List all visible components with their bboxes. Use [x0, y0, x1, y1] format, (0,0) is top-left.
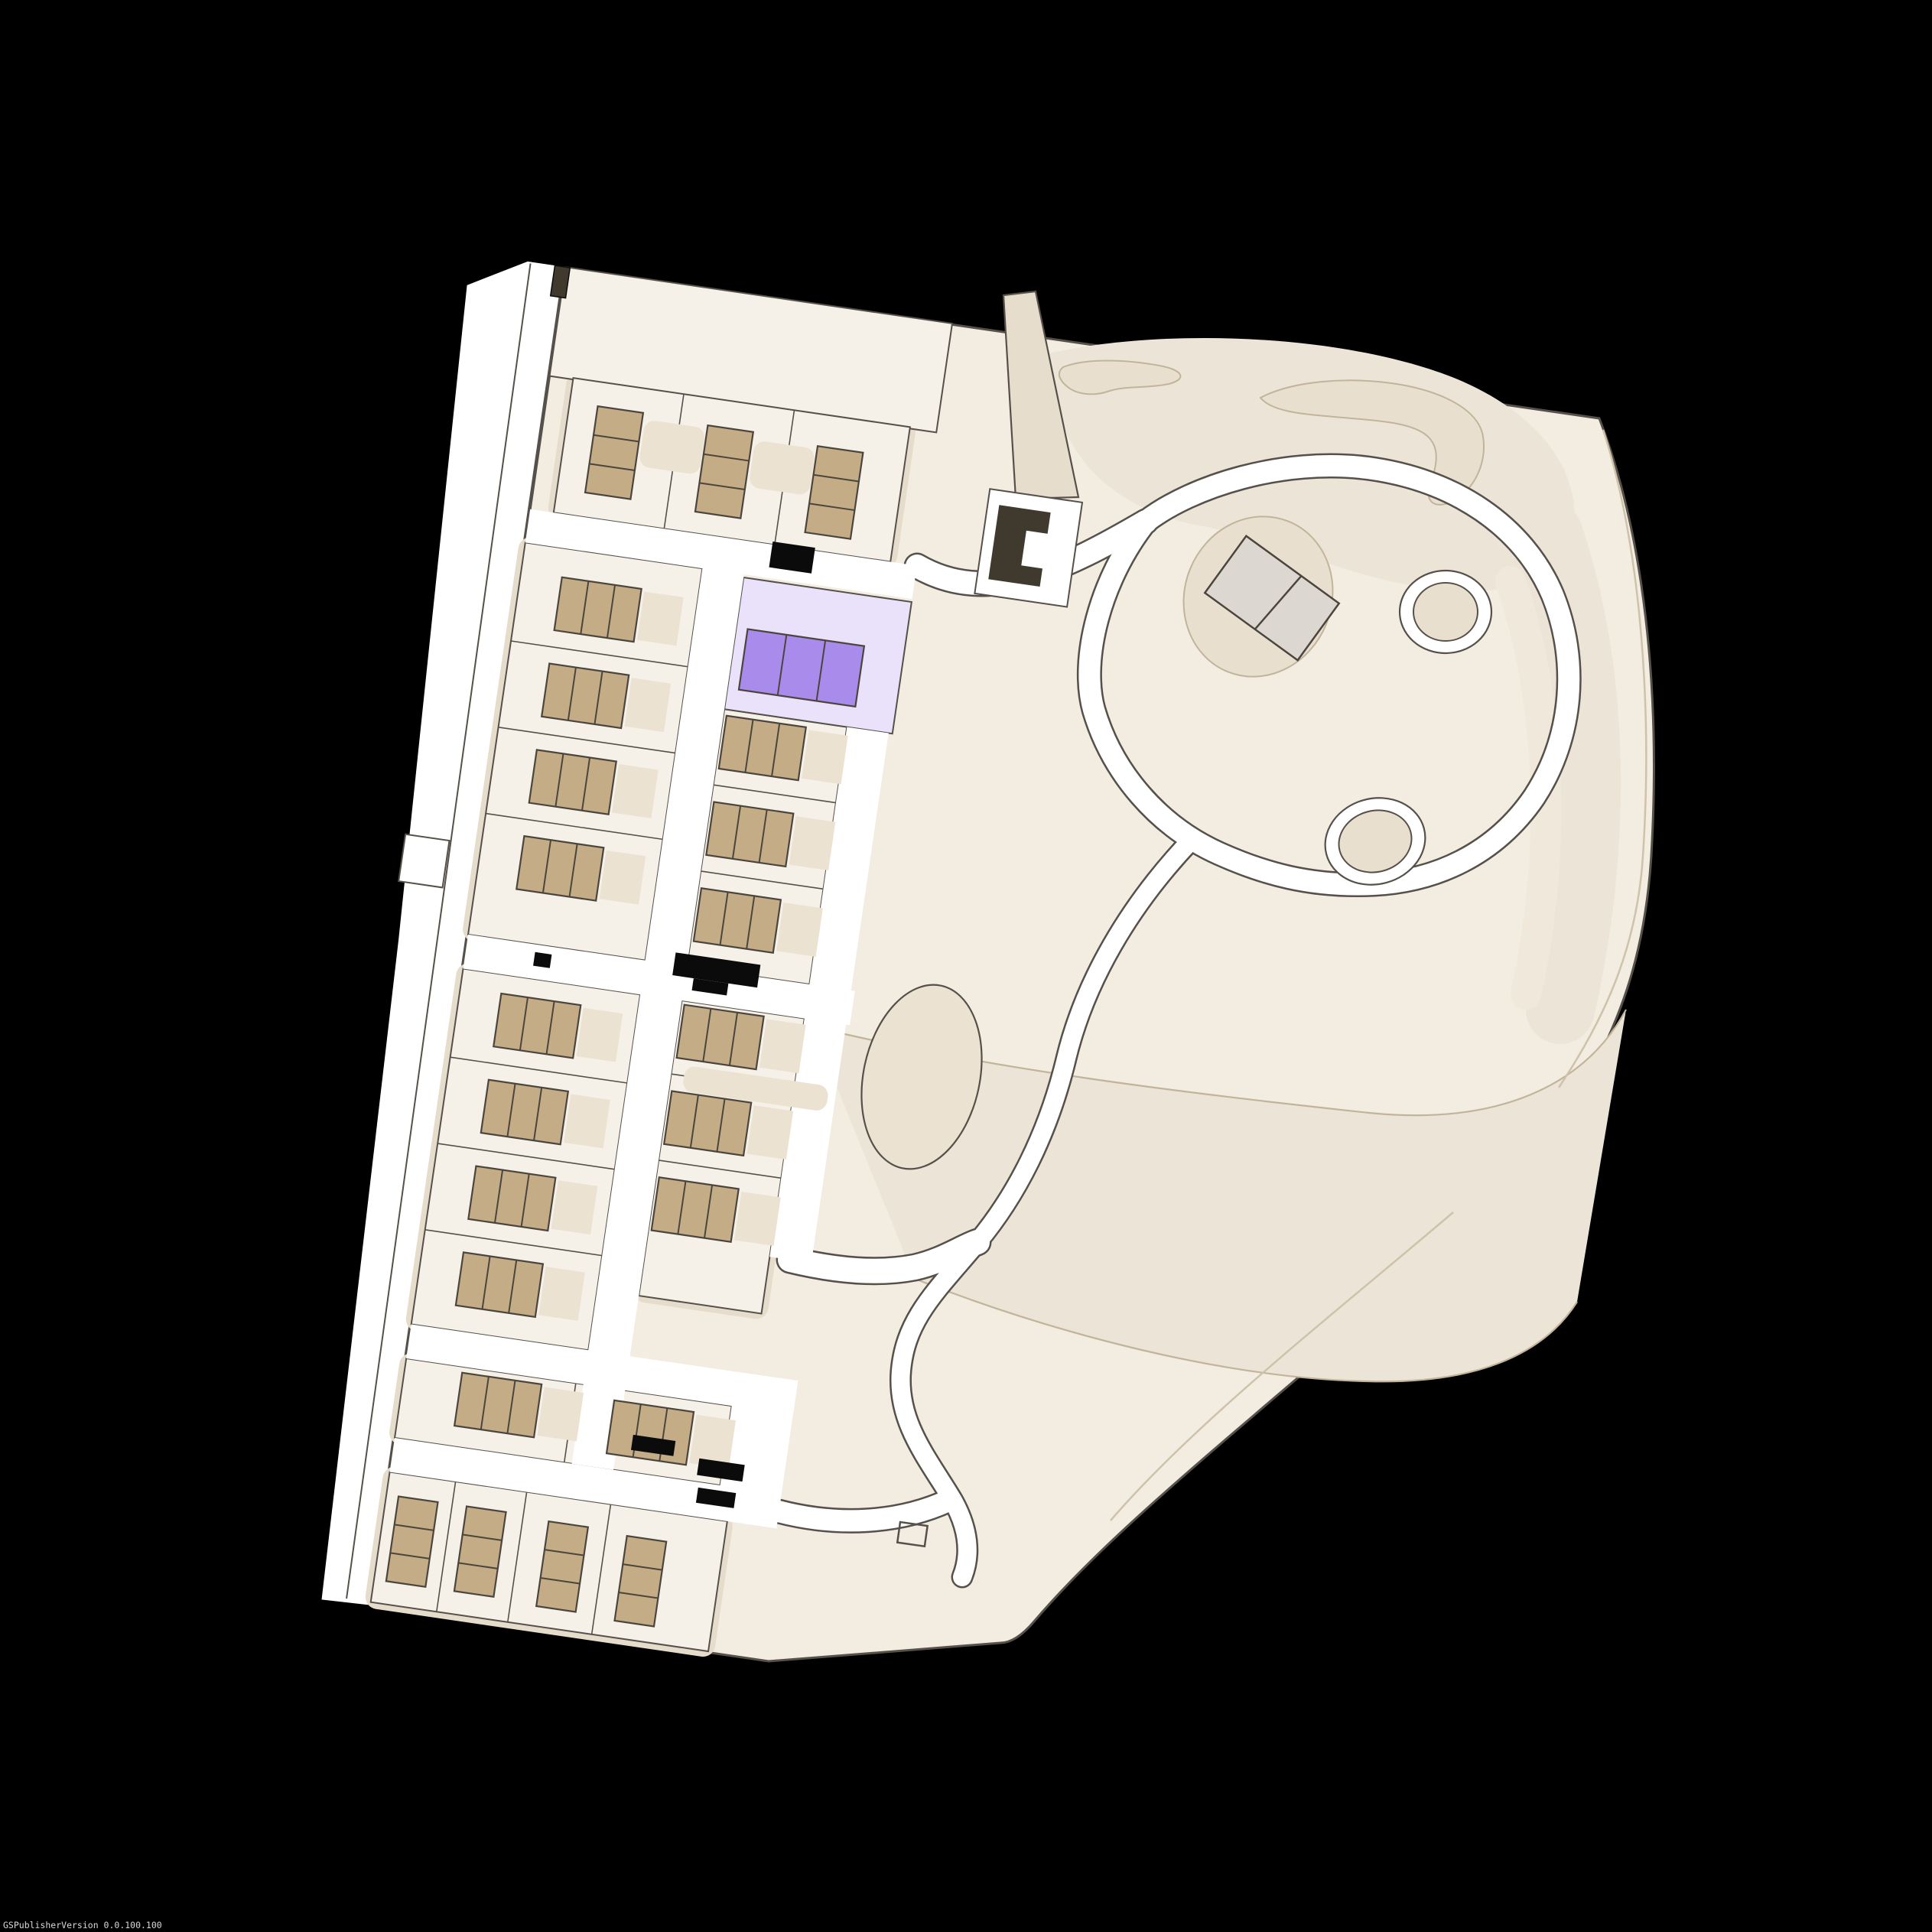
mound-island-0 — [1413, 583, 1478, 641]
building-footprint — [542, 664, 629, 728]
building-footprint — [607, 1400, 694, 1465]
building-lr-2 — [664, 1091, 751, 1155]
driveway-ur-3 — [776, 903, 823, 957]
watermark-text: GSPublisherVersion 0.0.100.100 — [3, 1920, 162, 1930]
building-ur-3 — [694, 888, 781, 952]
building-footprint — [555, 577, 642, 642]
building-pair-1 — [454, 1373, 542, 1437]
building-footprint — [529, 750, 616, 814]
building-ll-2 — [481, 1080, 568, 1144]
building-footprint — [719, 716, 806, 780]
building-footprint — [652, 1177, 739, 1241]
building-footprint — [468, 1166, 555, 1231]
building-ll-1 — [493, 994, 581, 1058]
driveway-ul-1 — [637, 591, 684, 646]
driveway-ll-2 — [564, 1094, 610, 1148]
driveway-spur-1 — [639, 419, 706, 475]
building-footprint — [493, 994, 581, 1058]
driveway-lr-1 — [759, 1019, 806, 1073]
driveway-ul-4 — [600, 851, 646, 905]
driveway-ur-2 — [789, 816, 836, 870]
driveway-ll-4 — [538, 1267, 585, 1321]
building-pair-2 — [607, 1400, 694, 1465]
building-ur-1 — [719, 716, 806, 780]
driveway-lr-3 — [734, 1192, 781, 1246]
building-ul-3 — [529, 750, 616, 814]
building-footprint — [481, 1080, 568, 1144]
driveway-ll-3 — [551, 1180, 598, 1234]
driveway-ul-3 — [612, 764, 659, 818]
building-footprint — [454, 1373, 542, 1437]
site-plan-drawing: GSPublisherVersion 0.0.100.100 — [0, 0, 1932, 1932]
driveway-ll-1 — [577, 1008, 623, 1062]
building-lr-3 — [652, 1177, 739, 1241]
west-road-stub — [398, 834, 449, 888]
driveway-ur-1 — [802, 730, 848, 784]
building-lr-1 — [677, 1005, 764, 1069]
driveway-ul-2 — [624, 678, 671, 732]
black-accent-1 — [533, 952, 551, 968]
building-footprint — [456, 1252, 543, 1316]
building-ul-1 — [555, 577, 642, 642]
building-ul-4 — [516, 836, 603, 900]
building-footprint — [664, 1091, 751, 1155]
driveway-lr-2 — [746, 1105, 793, 1160]
building-footprint — [516, 836, 603, 900]
building-footprint — [677, 1005, 764, 1069]
driveway-pair-1 — [537, 1387, 584, 1441]
building-ul-2 — [542, 664, 629, 728]
building-footprint — [706, 802, 793, 866]
building-ur-2 — [706, 802, 793, 866]
screenshot-canvas: GSPublisherVersion 0.0.100.100 — [0, 0, 1932, 1932]
building-ll-4 — [456, 1252, 543, 1316]
building-ll-3 — [468, 1166, 555, 1231]
building-footprint — [694, 888, 781, 952]
driveway-spur-2 — [748, 440, 815, 496]
